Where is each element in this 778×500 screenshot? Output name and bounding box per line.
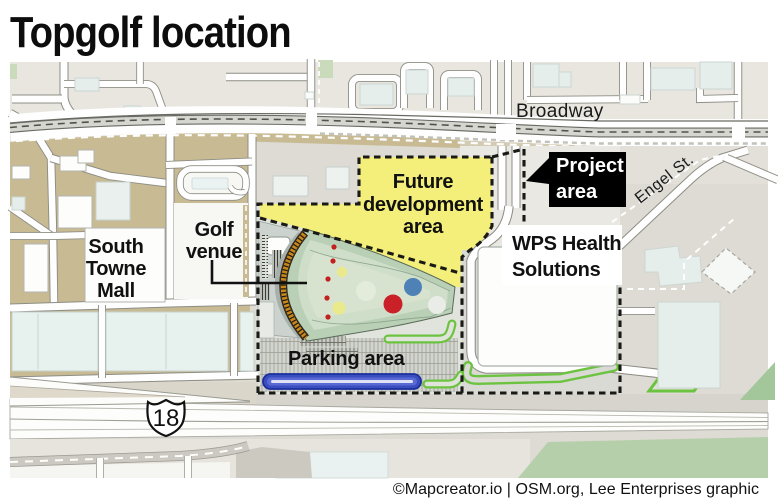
svg-text:Project: Project <box>556 155 624 177</box>
svg-text:Towne: Towne <box>86 258 147 280</box>
svg-text:venue: venue <box>186 241 242 263</box>
svg-text:Broadway: Broadway <box>516 101 604 122</box>
svg-text:South: South <box>88 236 143 258</box>
svg-text:area: area <box>403 216 444 238</box>
svg-text:Solutions: Solutions <box>512 259 601 281</box>
svg-text:Parking area: Parking area <box>288 348 406 370</box>
svg-text:Golf: Golf <box>195 219 234 241</box>
svg-text:development: development <box>363 194 484 216</box>
svg-text:Topgolf location: Topgolf location <box>10 8 291 57</box>
svg-text:18: 18 <box>153 405 180 432</box>
svg-text:Future: Future <box>393 171 454 193</box>
svg-text:©Mapcreator.io | OSM.org, Lee: ©Mapcreator.io | OSM.org, Lee Enterprise… <box>393 481 759 498</box>
svg-text:area: area <box>556 181 598 203</box>
svg-text:WPS Health: WPS Health <box>512 233 621 255</box>
svg-text:Mall: Mall <box>97 280 135 302</box>
